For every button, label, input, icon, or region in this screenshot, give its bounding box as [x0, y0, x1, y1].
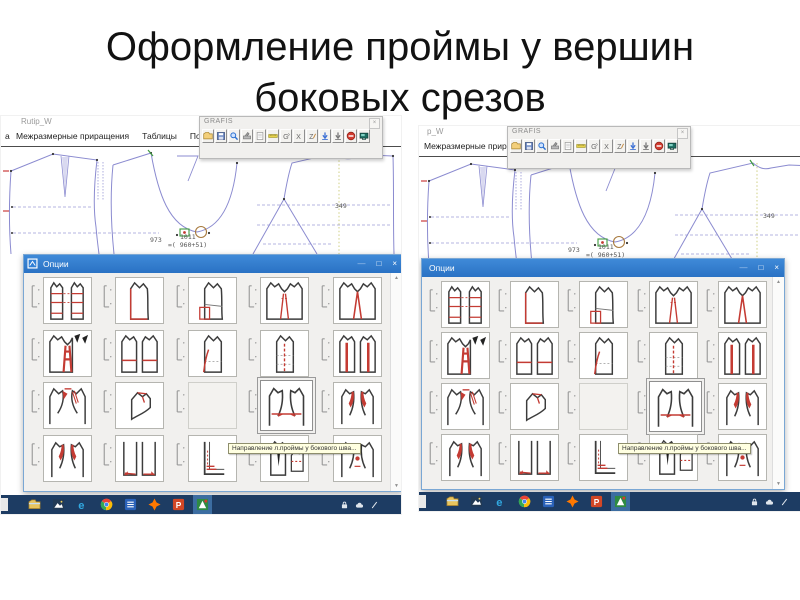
cell-bracket-icon — [565, 336, 578, 370]
toolbar-close-icon[interactable]: × — [677, 128, 688, 139]
cropped-icon — [419, 495, 426, 508]
pattern-thumb-two-redbars[interactable] — [333, 330, 382, 377]
save-icon[interactable] — [523, 139, 535, 153]
cell-bracket-icon — [704, 387, 717, 421]
dialog-title: Опции — [43, 259, 69, 269]
delete-x-icon[interactable] — [293, 129, 305, 143]
ruler-icon[interactable] — [267, 129, 279, 143]
grid-cell — [174, 330, 241, 382]
pattern-thumb-red-left-edge[interactable] — [510, 281, 559, 328]
grid-cell — [565, 332, 629, 383]
sheet-icon[interactable] — [562, 139, 574, 153]
cell-bracket-icon — [101, 439, 114, 473]
scroll-up-icon[interactable]: ▲ — [773, 279, 784, 285]
maximize-button[interactable]: □ — [758, 262, 763, 273]
grid-row — [29, 330, 386, 382]
measurement-left: 973 — [150, 236, 162, 244]
scroll-up-icon[interactable]: ▲ — [391, 275, 402, 281]
grid-cell — [174, 382, 241, 434]
grid-cell — [565, 383, 629, 434]
lock-icon[interactable] — [340, 500, 349, 510]
cell-bracket-icon — [174, 386, 187, 420]
avast-icon[interactable] — [145, 495, 164, 514]
chrome-icon[interactable] — [515, 492, 534, 511]
dialog-app-icon — [27, 258, 38, 269]
delete-x-icon[interactable] — [601, 139, 613, 153]
close-button[interactable]: × — [774, 262, 779, 273]
pen-icon[interactable] — [370, 500, 379, 510]
cell-bracket-icon — [29, 439, 42, 473]
grid-cell — [496, 383, 560, 434]
arrow-down-gray-icon[interactable] — [640, 139, 652, 153]
grid-cell — [427, 332, 491, 383]
cell-bracket-icon — [565, 438, 578, 472]
cell-bracket-icon — [246, 334, 259, 368]
zoom-icon[interactable] — [536, 139, 548, 153]
pattern-thumb-one-red-v[interactable] — [333, 277, 382, 324]
pattern-thumb-red-curve[interactable] — [188, 330, 237, 377]
cloud-icon[interactable] — [355, 500, 364, 510]
tooltip: Направление л.проймы у бокового шва... — [228, 443, 361, 454]
cell-bracket-icon — [174, 334, 187, 368]
pattern-thumb-two-red-v[interactable] — [649, 281, 698, 328]
office-icon[interactable] — [539, 492, 558, 511]
grid-cell — [565, 281, 629, 332]
photos-icon[interactable] — [467, 492, 486, 511]
arrow-down-blue-icon[interactable] — [319, 129, 331, 143]
grid-cell — [101, 277, 168, 329]
dialog-title: Опции — [429, 263, 455, 273]
open-file-icon[interactable] — [510, 139, 522, 153]
scrollbar[interactable]: ▲ ▼ — [390, 273, 402, 491]
grid-cell — [101, 435, 168, 487]
grafis-toolbar: GRAFIS × — [507, 126, 691, 169]
cell-bracket-icon — [496, 285, 509, 319]
grid-cell — [246, 277, 313, 329]
screen-icon[interactable] — [358, 129, 370, 143]
pattern-thumb-red-dot[interactable] — [718, 434, 767, 481]
lock-icon[interactable] — [750, 497, 759, 507]
cell-bracket-icon — [101, 386, 114, 420]
grid-row — [29, 382, 386, 434]
minimize-button[interactable]: — — [739, 262, 747, 273]
powerpoint-icon[interactable] — [587, 492, 606, 511]
cloud-icon[interactable] — [765, 497, 774, 507]
zigzag-z-icon[interactable] — [614, 139, 626, 153]
pattern-thumb-two-waistline[interactable] — [115, 330, 164, 377]
grafis-toolbar-title: GRAFIS — [204, 118, 233, 125]
grid-cell — [29, 435, 96, 487]
pattern-thumb-two-redbars[interactable] — [718, 332, 767, 379]
pattern-thumb-armhole-red[interactable] — [441, 383, 490, 430]
photos-icon[interactable] — [49, 495, 68, 514]
menu-fragment: а — [5, 131, 10, 141]
grid-cell — [635, 281, 699, 332]
dialog-titlebar[interactable]: Опции — □ × — [24, 255, 402, 273]
cell-bracket-icon — [29, 281, 42, 315]
grid-row — [29, 277, 386, 329]
pattern-options-grid — [427, 281, 768, 485]
screen-icon[interactable] — [666, 139, 678, 153]
office-icon[interactable] — [121, 495, 140, 514]
cell-bracket-icon — [319, 281, 332, 315]
avast-icon[interactable] — [563, 492, 582, 511]
cell-bracket-icon — [565, 387, 578, 421]
grid-cell — [29, 382, 96, 434]
cell-bracket-icon — [427, 438, 440, 472]
pattern-thumb-two-waistline[interactable] — [510, 332, 559, 379]
ruler-icon[interactable] — [575, 139, 587, 153]
pattern-thumb-small-shoulder[interactable] — [115, 382, 164, 429]
grid-cell — [319, 382, 386, 434]
pattern-thumb-armhole-corners[interactable] — [333, 382, 382, 429]
scrollbar[interactable]: ▲ ▼ — [772, 277, 784, 489]
zigzag-z-icon[interactable] — [306, 129, 318, 143]
thumb-empty[interactable] — [579, 383, 628, 430]
grafis-icon[interactable] — [193, 495, 212, 514]
window-title: Rutip_W — [21, 117, 52, 126]
sheet-icon[interactable] — [254, 129, 266, 143]
pattern-thumb-armhole-corners[interactable] — [441, 434, 490, 481]
options-dialog: Опции — □ × ▲ ▼ Направление л.проймы у б… — [421, 258, 785, 490]
pattern-options-grid — [29, 277, 386, 487]
pattern-thumb-hem-marks[interactable] — [510, 434, 559, 481]
pattern-thumb-one-red-v[interactable] — [718, 281, 767, 328]
pattern-drawing — [1, 147, 401, 254]
grid-cell — [496, 281, 560, 332]
pattern-thumb-dash-waist[interactable] — [260, 330, 309, 377]
pattern-thumb-hem-marks[interactable] — [115, 435, 164, 482]
grafis-toolbar-icons — [200, 129, 382, 143]
grafis-toolbar-icons — [508, 139, 690, 153]
options-dialog: Опции — □ × ▲ ▼ Направление л.проймы у б… — [23, 254, 402, 492]
pattern-thumb-dash-waist[interactable] — [649, 332, 698, 379]
cropped-icon — [1, 498, 8, 511]
pattern-thumb-small-shoulder[interactable] — [510, 383, 559, 430]
toolbar-close-icon[interactable]: × — [369, 118, 380, 129]
grid-cell — [635, 383, 699, 434]
pattern-thumb-waist-redbox[interactable] — [188, 277, 237, 324]
cell-bracket-icon — [704, 285, 717, 319]
measurement-right: 349 — [763, 212, 775, 220]
grafis-screenshot-right: p_W а Межразмерные приращения Таблицы По… — [418, 125, 800, 512]
cell-bracket-icon — [427, 285, 440, 319]
grid-cell — [704, 383, 768, 434]
measurement-center: 1011 — [598, 243, 614, 251]
grid-cell — [174, 277, 241, 329]
grid-cell — [704, 332, 768, 383]
grafis-toolbar: GRAFIS × — [199, 116, 383, 159]
cell-bracket-icon — [174, 281, 187, 315]
grid-cell — [29, 330, 96, 382]
plotter-icon[interactable] — [549, 139, 561, 153]
cell-bracket-icon — [246, 281, 259, 315]
grid-cell — [635, 332, 699, 383]
window-title: p_W — [427, 127, 443, 136]
cell-bracket-icon — [496, 387, 509, 421]
pattern-thumb-two-red-hlines[interactable] — [43, 277, 92, 324]
cell-bracket-icon — [29, 386, 42, 420]
grid-cell — [704, 434, 768, 485]
edge-icon[interactable] — [73, 495, 92, 514]
pattern-thumb-armhole-corners[interactable] — [43, 435, 92, 482]
taskbar-tray — [750, 492, 789, 511]
measurement-left: 973 — [568, 246, 580, 254]
pattern-thumb-red-left-edge[interactable] — [115, 277, 164, 324]
slide-title: Оформление проймы у вершин боковых срезо… — [0, 22, 800, 124]
cell-bracket-icon — [427, 387, 440, 421]
grid-cell — [246, 382, 313, 434]
grid-cell — [496, 434, 560, 485]
grid-cell — [496, 332, 560, 383]
tooltip: Направление л.проймы у бокового шва... — [618, 443, 751, 454]
maximize-button[interactable]: □ — [376, 258, 381, 269]
menu-item-tables[interactable]: Таблицы — [142, 131, 177, 141]
cell-bracket-icon — [704, 336, 717, 370]
cell-bracket-icon — [635, 336, 648, 370]
zoom-icon[interactable] — [228, 129, 240, 143]
open-file-icon[interactable] — [202, 129, 214, 143]
grafis-toolbar-title: GRAFIS — [512, 128, 541, 135]
cell-bracket-icon — [427, 336, 440, 370]
chrome-icon[interactable] — [97, 495, 116, 514]
grid-cell — [427, 281, 491, 332]
explorer-icon[interactable] — [443, 492, 462, 511]
grading-g-icon[interactable] — [280, 129, 292, 143]
grid-cell — [101, 330, 168, 382]
cell-bracket-icon — [319, 386, 332, 420]
cell-bracket-icon — [635, 285, 648, 319]
pattern-thumb-thick-v-black[interactable] — [441, 332, 490, 379]
grid-cell — [319, 277, 386, 329]
grid-cell — [29, 277, 96, 329]
pattern-thumb-centerline[interactable] — [260, 380, 313, 431]
menu-item-grading[interactable]: Межразмерные приращения — [16, 131, 129, 141]
grading-g-icon[interactable] — [588, 139, 600, 153]
taskbar-apps — [443, 492, 630, 511]
minimize-button[interactable]: — — [357, 258, 365, 269]
powerpoint-icon[interactable] — [169, 495, 188, 514]
grid-row — [427, 332, 768, 383]
stop-icon[interactable] — [653, 139, 665, 153]
grid-row — [427, 383, 768, 434]
pattern-thumb-armhole-red[interactable] — [43, 382, 92, 429]
cell-bracket-icon — [496, 438, 509, 472]
cell-bracket-icon — [635, 387, 648, 421]
pattern-thumb-red-curve[interactable] — [579, 332, 628, 379]
pattern-thumb-black-dart[interactable] — [649, 434, 698, 481]
arrow-down-gray-icon[interactable] — [332, 129, 344, 143]
arrow-down-blue-icon[interactable] — [627, 139, 639, 153]
taskbar — [419, 492, 800, 511]
pattern-thumb-thick-v-black[interactable] — [43, 330, 92, 377]
pattern-thumb-armhole-corners[interactable] — [718, 383, 767, 430]
taskbar — [1, 495, 401, 514]
cell-bracket-icon — [319, 334, 332, 368]
edge-icon[interactable] — [491, 492, 510, 511]
pen-icon[interactable] — [780, 497, 789, 507]
save-icon[interactable] — [215, 129, 227, 143]
grid-cell — [319, 330, 386, 382]
cell-bracket-icon — [101, 281, 114, 315]
pattern-thumb-waist-redbox[interactable] — [579, 281, 628, 328]
taskbar-tray — [340, 495, 379, 514]
grid-row — [427, 281, 768, 332]
cell-bracket-icon — [496, 336, 509, 370]
thumb-empty[interactable] — [188, 382, 237, 429]
close-button[interactable]: × — [392, 258, 397, 269]
pattern-thumb-two-red-v[interactable] — [260, 277, 309, 324]
scroll-down-icon[interactable]: ▼ — [391, 483, 402, 489]
grid-cell — [427, 434, 491, 485]
plotter-icon[interactable] — [241, 129, 253, 143]
grid-cell — [246, 330, 313, 382]
dialog-titlebar[interactable]: Опции — □ × — [422, 259, 784, 277]
explorer-icon[interactable] — [25, 495, 44, 514]
grid-cell — [101, 382, 168, 434]
measurement-formula: =( 960+51) — [168, 241, 207, 249]
grid-cell — [427, 383, 491, 434]
cell-bracket-icon — [29, 334, 42, 368]
pattern-thumb-centerline[interactable] — [649, 381, 702, 432]
cell-bracket-icon — [174, 439, 187, 473]
measurement-right: 349 — [335, 202, 347, 210]
stop-icon[interactable] — [345, 129, 357, 143]
slide-title-line1: Оформление проймы у вершин — [0, 22, 800, 73]
cell-bracket-icon — [246, 386, 259, 420]
cell-bracket-icon — [565, 285, 578, 319]
pattern-thumb-l-red[interactable] — [579, 434, 628, 481]
grid-cell — [635, 434, 699, 485]
pattern-thumb-two-red-hlines[interactable] — [441, 281, 490, 328]
grafis-screenshot-left: Rutip_W а Межразмерные приращения Таблиц… — [0, 115, 402, 515]
grid-cell — [704, 281, 768, 332]
measurement-center: 1011 — [180, 233, 196, 241]
scroll-down-icon[interactable]: ▼ — [773, 481, 784, 487]
grid-cell — [565, 434, 629, 485]
grid-row — [427, 434, 768, 485]
grafis-icon[interactable] — [611, 492, 630, 511]
taskbar-apps — [25, 495, 212, 514]
cell-bracket-icon — [101, 334, 114, 368]
